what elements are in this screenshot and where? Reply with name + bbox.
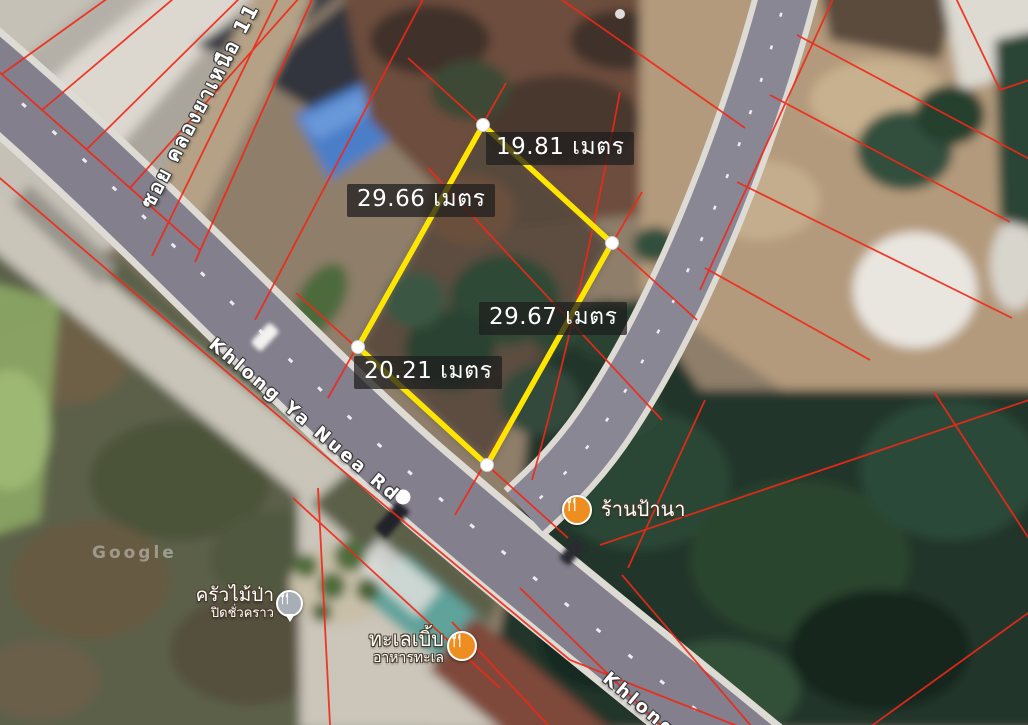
measurement-label-bottom: 20.21 เมตร (354, 356, 502, 389)
poi-label-ranpana[interactable]: ร้านป้านา (601, 498, 685, 521)
restaurant-icon (564, 497, 579, 512)
poi-label-talebib[interactable]: ทะเลเบิ้บ อาหารทะเล (336, 628, 444, 666)
poi-name[interactable]: ทะเลเบิ้บ (336, 628, 444, 651)
measurement-label-left: 29.66 เมตร (347, 184, 495, 217)
poi-marker-ranpana[interactable] (562, 495, 592, 525)
restaurant-icon (278, 592, 291, 605)
measurement-label-top: 19.81 เมตร (486, 132, 634, 165)
poi-marker-kruamaipa[interactable] (276, 590, 303, 617)
poi-name[interactable]: ร้านป้านา (601, 498, 685, 521)
poi-name[interactable]: ครัวไม้ป่า (176, 585, 274, 607)
plot-vertex-handle[interactable] (352, 341, 365, 354)
restaurant-icon (449, 633, 464, 648)
road-dot-small (615, 9, 625, 19)
poi-marker-talebib[interactable] (447, 631, 477, 661)
plot-vertex-handle[interactable] (481, 459, 494, 472)
satellite-imagery[interactable] (0, 0, 1028, 725)
poi-label-kruamaipa[interactable]: ครัวไม้ป่า ปิดชั่วคราว (176, 585, 274, 621)
plot-vertex-handle[interactable] (477, 119, 490, 132)
imagery-watermark: Google (92, 543, 177, 563)
plot-vertex-handle[interactable] (606, 237, 619, 250)
measurement-label-right: 29.67 เมตร (479, 302, 627, 335)
poi-subtitle: อาหารทะเล (336, 651, 444, 666)
map-viewport[interactable]: 19.81 เมตร 29.66 เมตร 29.67 เมตร 20.21 เ… (0, 0, 1028, 725)
poi-status: ปิดชั่วคราว (176, 607, 274, 621)
